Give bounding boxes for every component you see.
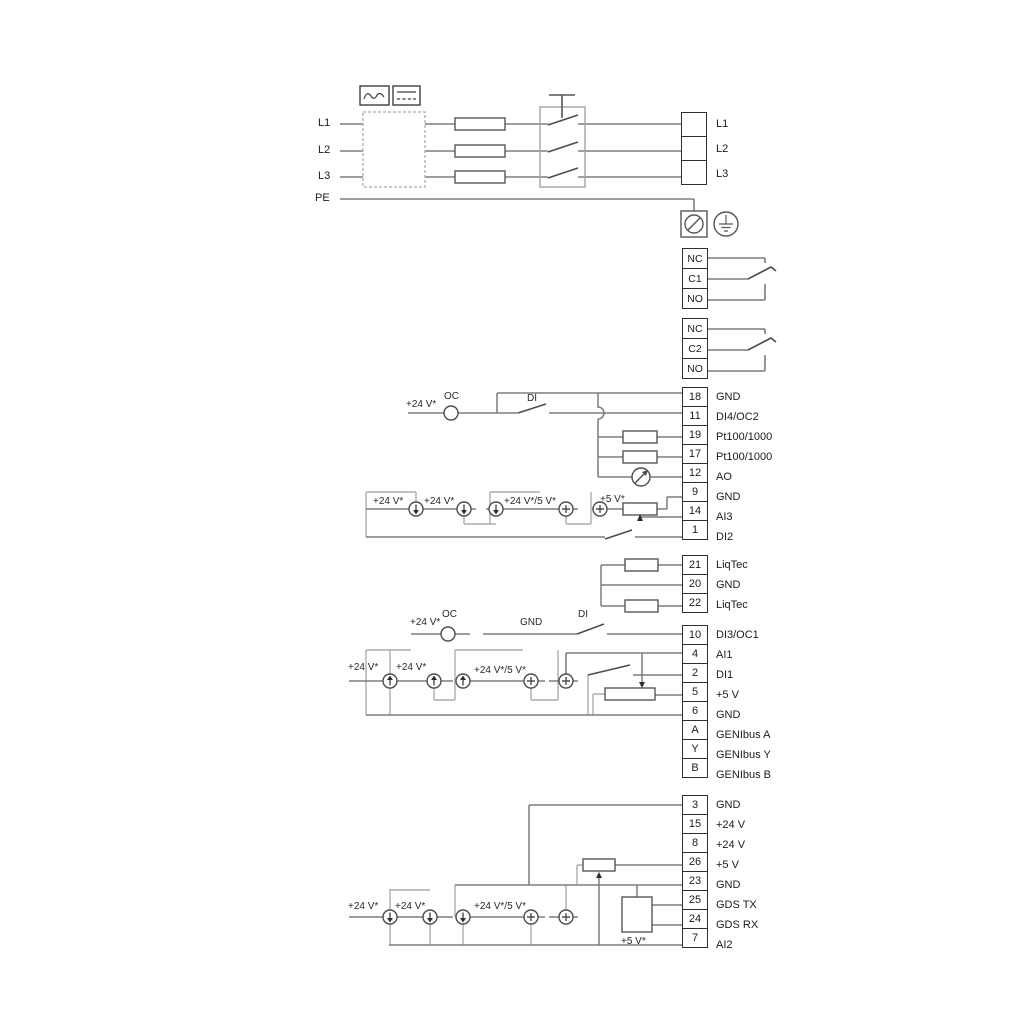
relay1-contact-icon — [707, 258, 776, 300]
earth-ground-icon — [714, 212, 738, 236]
terminal-label: GDS TX — [716, 895, 758, 915]
relay2-contact-icon — [707, 329, 776, 371]
terminal-cell: NC — [682, 248, 708, 269]
io-terminal-labels-3: GND +24 V +24 V +5 V GND GDS TX GDS RX A… — [716, 795, 758, 955]
pt100-resistor-icons — [623, 431, 657, 463]
terminal-label: GND — [716, 487, 772, 507]
ai3-potentiometer-icon — [623, 503, 657, 521]
terminal-cell: 24 — [682, 909, 708, 929]
terminal-cell: 12 — [682, 463, 708, 483]
supply-label: +24 V* — [348, 662, 378, 673]
supply-label: +5 V* — [600, 494, 625, 505]
terminal-label: L1 — [716, 112, 728, 137]
gds-sensor-box-icon — [622, 897, 652, 932]
emc-filter-box — [363, 112, 425, 187]
terminal-cell: 26 — [682, 852, 708, 872]
relay2-terminal-strip: NC C2 NO — [682, 318, 708, 379]
ai2-potentiometer-icon — [583, 859, 615, 878]
terminal-label: +24 V — [716, 815, 758, 835]
terminal-cell: 23 — [682, 871, 708, 891]
terminal-cell: 19 — [682, 425, 708, 445]
supply-label: +24 V* — [348, 901, 378, 912]
terminal-label: L2 — [716, 137, 728, 162]
terminal-cell: Y — [682, 739, 708, 759]
supply-label: +24 V*/5 V* — [474, 665, 526, 676]
supply-label: +24 V* — [373, 496, 403, 507]
terminal-label: LiqTec — [716, 555, 748, 575]
power-label-pe: PE — [315, 192, 330, 204]
terminal-cell: A — [682, 720, 708, 740]
terminal-cell: 2 — [682, 663, 708, 683]
power-label-l1: L1 — [318, 117, 330, 129]
terminal-cell: 8 — [682, 833, 708, 853]
supply-label: +24 V*/5 V* — [474, 901, 526, 912]
fuse-icons — [455, 118, 505, 183]
terminal-cell: 20 — [682, 574, 708, 594]
terminal-cell: 7 — [682, 928, 708, 948]
terminal-label: +5 V — [716, 685, 771, 705]
io-terminal-strip-1: 18 11 19 17 12 9 14 1 — [682, 387, 708, 540]
terminal-cell: 6 — [682, 701, 708, 721]
analog-output-meter-icon — [632, 468, 650, 486]
io-terminal-strip-3: 3 15 8 26 23 25 24 7 — [682, 795, 708, 948]
terminal-label: GENIbus B — [716, 765, 771, 785]
terminal-cell: 11 — [682, 406, 708, 426]
terminal-cell: 25 — [682, 890, 708, 910]
terminal-label: DI2 — [716, 527, 772, 547]
terminal-cell: C1 — [682, 268, 708, 289]
oc2-source-circle-icon — [444, 406, 458, 420]
terminal-label: DI4/OC2 — [716, 407, 772, 427]
terminal-label: DI1 — [716, 665, 771, 685]
di-label: DI — [578, 609, 588, 620]
di-label: DI — [527, 393, 537, 404]
supply-label: +24 V* — [396, 662, 426, 673]
supply-label: +24 V* — [406, 399, 436, 410]
terminal-label: GND — [716, 387, 772, 407]
mains-terminal-labels: L1 L2 L3 — [716, 112, 728, 187]
terminal-label: DI3/OC1 — [716, 625, 771, 645]
liqtec-terminal-labels: LiqTec GND LiqTec — [716, 555, 748, 615]
terminal-cell: 4 — [682, 644, 708, 664]
terminal-label: AO — [716, 467, 772, 487]
terminal-label: GDS RX — [716, 915, 758, 935]
terminal-cell — [681, 160, 707, 185]
terminal-label: GENIbus A — [716, 725, 771, 745]
terminal-label: Pt100/1000 — [716, 427, 772, 447]
terminal-cell: 15 — [682, 814, 708, 834]
power-label-l2: L2 — [318, 144, 330, 156]
power-label-l3: L3 — [318, 170, 330, 182]
mains-wiring — [340, 124, 694, 211]
terminal-label: GND — [716, 575, 748, 595]
terminal-cell: 5 — [682, 682, 708, 702]
terminal-cell: NO — [682, 358, 708, 379]
io-terminal-labels-2: DI3/OC1 AI1 DI1 +5 V GND GENIbus A GENIb… — [716, 625, 771, 785]
terminal-label: GND — [716, 875, 758, 895]
terminal-cell: 3 — [682, 795, 708, 815]
terminal-label: +24 V — [716, 835, 758, 855]
supply-label: +5 V* — [621, 936, 646, 947]
terminal-label: GND — [716, 795, 758, 815]
wiring-diagram: L1 L2 L3 PE L1 L2 L3 NC C1 NO NC C2 NO 1… — [0, 0, 1024, 1024]
supply-label: +24 V*/5 V* — [504, 496, 556, 507]
supply-label: +24 V* — [410, 617, 440, 628]
io-terminal-labels-1: GND DI4/OC2 Pt100/1000 Pt100/1000 AO GND… — [716, 387, 772, 547]
gnd-label: GND — [520, 617, 542, 628]
supply-label: +24 V* — [424, 496, 454, 507]
ac-symbol-icon — [360, 86, 389, 105]
terminal-cell: 14 — [682, 501, 708, 521]
terminal-cell: 1 — [682, 520, 708, 540]
oc-label: OC — [442, 609, 457, 620]
oc-label: OC — [444, 391, 459, 402]
di3-oc1-row — [411, 624, 682, 641]
terminal-cell: 9 — [682, 482, 708, 502]
terminal-cell: 18 — [682, 387, 708, 407]
terminal-label: LiqTec — [716, 595, 748, 615]
mains-terminal-block — [681, 112, 707, 185]
terminal-label: AI1 — [716, 645, 771, 665]
terminal-cell: C2 — [682, 338, 708, 359]
main-switch-icon — [540, 95, 585, 187]
terminal-label: GENIbus Y — [716, 745, 771, 765]
terminal-cell: NO — [682, 288, 708, 309]
io-terminal-strip-2: 10 4 2 5 6 A Y B — [682, 625, 708, 778]
terminal-cell: B — [682, 758, 708, 778]
terminal-label: GND — [716, 705, 771, 725]
wiring-layer — [0, 0, 1024, 1024]
ai1-potentiometer-icon — [605, 682, 655, 700]
terminal-label: L3 — [716, 162, 728, 187]
liqtec-terminal-strip: 21 20 22 — [682, 555, 708, 613]
terminal-cell — [681, 136, 707, 161]
dc-symbol-icon — [393, 86, 420, 105]
supply-label: +24 V* — [395, 901, 425, 912]
terminal-label: AI2 — [716, 935, 758, 955]
terminal-cell: 10 — [682, 625, 708, 645]
terminal-label: +5 V — [716, 855, 758, 875]
terminal-cell: NC — [682, 318, 708, 339]
terminal-cell — [681, 112, 707, 137]
relay1-terminal-strip: NC C1 NO — [682, 248, 708, 309]
terminal-cell: 17 — [682, 444, 708, 464]
terminal-cell: 21 — [682, 555, 708, 575]
terminal-cell: 22 — [682, 593, 708, 613]
pe-screw-terminal-icon — [681, 211, 707, 237]
terminal-label: Pt100/1000 — [716, 447, 772, 467]
terminal-label: AI3 — [716, 507, 772, 527]
